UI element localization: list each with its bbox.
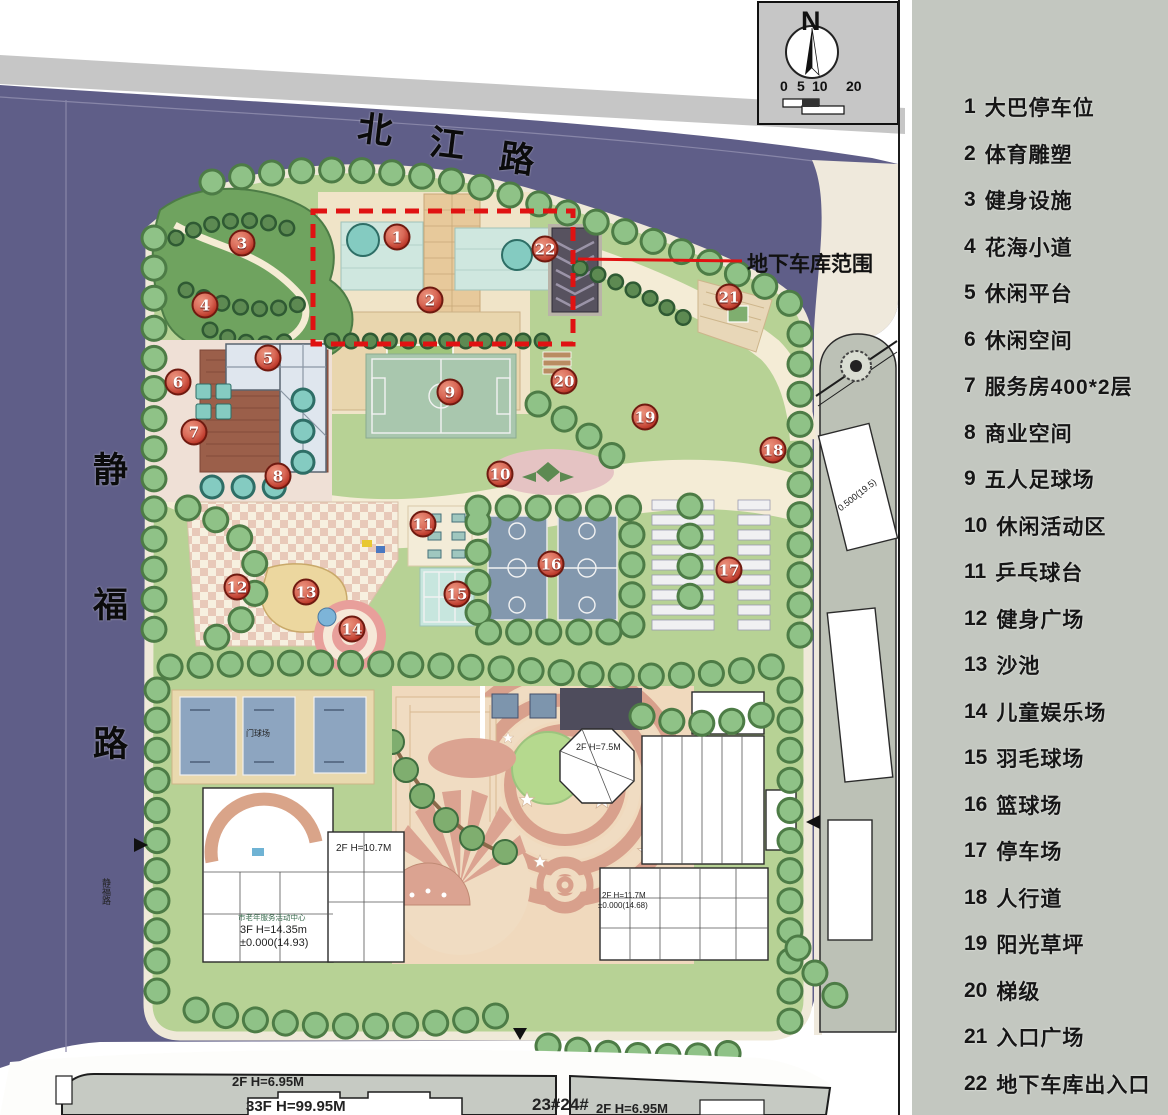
plan-marker-12: 12 bbox=[224, 574, 251, 601]
plan-marker-9: 9 bbox=[437, 379, 464, 406]
legend-item-label: 篮球场 bbox=[996, 790, 1062, 820]
legend-divider-line bbox=[898, 0, 900, 1115]
center-building-caption: 市老年服务活动中心 bbox=[238, 912, 306, 923]
legend-item-label: 五人足球场 bbox=[985, 464, 1095, 494]
plan-marker-17: 17 bbox=[716, 557, 743, 584]
legend-item-number: 5 bbox=[964, 281, 976, 305]
legend-item: 9 五人足球场 bbox=[912, 456, 1168, 503]
legend-item-number: 8 bbox=[964, 421, 976, 445]
legend-item-label: 休闲平台 bbox=[985, 278, 1073, 308]
legend-item: 17 停车场 bbox=[912, 828, 1168, 875]
site-plan-screenshot: 北 江 路 静 福 路 静福路 地下车库范围 N 051020 2F H=7.5… bbox=[0, 0, 1168, 1115]
plan-marker-6: 6 bbox=[165, 369, 192, 396]
gateball-label: 门球场 bbox=[246, 728, 270, 739]
legend-item-label: 乒乓球台 bbox=[995, 557, 1083, 587]
legend-item: 5 休闲平台 bbox=[912, 270, 1168, 317]
legend-item: 18 人行道 bbox=[912, 875, 1168, 922]
legend-item-number: 22 bbox=[964, 1072, 987, 1096]
legend-item-label: 健身设施 bbox=[985, 185, 1073, 215]
road-label-north-char3: 路 bbox=[497, 129, 539, 184]
legend-item: 19 阳光草坪 bbox=[912, 921, 1168, 968]
legend-item: 20 梯级 bbox=[912, 968, 1168, 1015]
legend-item-label: 休闲活动区 bbox=[996, 511, 1106, 541]
legend-item-number: 16 bbox=[964, 793, 987, 817]
plan-marker-8: 8 bbox=[265, 463, 292, 490]
sw-parcel-height-label: 2F H=6.95M bbox=[232, 1074, 304, 1089]
scale-tick-5: 5 bbox=[797, 78, 805, 94]
legend-item-number: 13 bbox=[964, 653, 987, 677]
legend-item: 21 入口广场 bbox=[912, 1014, 1168, 1061]
legend-item-number: 11 bbox=[964, 560, 986, 584]
legend-item-number: 20 bbox=[964, 979, 987, 1003]
legend-item: 22 地下车库出入口 bbox=[912, 1061, 1168, 1108]
legend-item-number: 14 bbox=[964, 700, 987, 724]
legend-item: 12 健身广场 bbox=[912, 596, 1168, 643]
plan-marker-4: 4 bbox=[192, 292, 219, 319]
legend-item-label: 阳光草坪 bbox=[996, 929, 1084, 959]
legend-item-label: 沙池 bbox=[996, 650, 1040, 680]
plan-marker-10: 10 bbox=[487, 461, 514, 488]
legend-item-label: 花海小道 bbox=[985, 232, 1073, 262]
legend-item-label: 健身广场 bbox=[996, 604, 1084, 634]
legend-item-number: 12 bbox=[964, 607, 987, 631]
legend-item: 2 体育雕塑 bbox=[912, 131, 1168, 178]
legend-item: 10 休闲活动区 bbox=[912, 503, 1168, 550]
legend-item-number: 9 bbox=[964, 467, 976, 491]
plan-marker-16: 16 bbox=[538, 551, 565, 578]
north-letter: N bbox=[801, 6, 821, 37]
legend-item: 3 健身设施 bbox=[912, 177, 1168, 224]
legend-item-label: 梯级 bbox=[996, 976, 1040, 1006]
legend-item-number: 17 bbox=[964, 839, 987, 863]
scale-tick-10: 10 bbox=[812, 78, 828, 94]
plan-marker-5: 5 bbox=[255, 345, 282, 372]
plan-marker-15: 15 bbox=[444, 581, 471, 608]
legend-item-label: 大巴停车位 bbox=[985, 92, 1095, 122]
legend-item-number: 21 bbox=[964, 1025, 987, 1049]
scale-tick-20: 20 bbox=[846, 78, 862, 94]
legend-item-label: 停车场 bbox=[996, 836, 1062, 866]
legend-item: 6 休闲空间 bbox=[912, 317, 1168, 364]
site-plan-graphic bbox=[0, 0, 945, 1115]
legend-item-label: 羽毛球场 bbox=[996, 743, 1084, 773]
legend-item: 8 商业空间 bbox=[912, 410, 1168, 457]
legend-item-label: 儿童娱乐场 bbox=[996, 697, 1106, 727]
s-parcel-height-label: 2F H=6.95M bbox=[596, 1101, 668, 1115]
legend-item-label: 入口广场 bbox=[996, 1022, 1084, 1052]
plan-marker-22: 22 bbox=[532, 236, 559, 263]
legend-rows: 1 大巴停车位 2 体育雕塑 3 健身设施 4 花海小道 5 休闲平台 6 休闲… bbox=[912, 84, 1168, 1107]
legend-item: 15 羽毛球场 bbox=[912, 735, 1168, 782]
legend-item-label: 地下车库出入口 bbox=[996, 1069, 1150, 1099]
garage-range-label: 地下车库范围 bbox=[747, 248, 873, 278]
legend-item-number: 7 bbox=[964, 374, 976, 398]
legend-item-number: 19 bbox=[964, 932, 987, 956]
legend-item-label: 体育雕塑 bbox=[985, 139, 1073, 169]
plan-marker-7: 7 bbox=[181, 419, 208, 446]
legend-item-number: 18 bbox=[964, 886, 987, 910]
road-label-west-char2: 福 bbox=[93, 577, 128, 628]
plan-marker-20: 20 bbox=[551, 368, 578, 395]
octagon-building-label: 2F H=7.5M bbox=[576, 742, 621, 752]
road-label-north-char1: 北 bbox=[355, 100, 396, 155]
legend-item-number: 3 bbox=[964, 188, 976, 212]
legend-item-number: 4 bbox=[964, 235, 976, 259]
road-label-west-char1: 静 bbox=[93, 442, 128, 493]
legend-panel: 1 大巴停车位 2 体育雕塑 3 健身设施 4 花海小道 5 休闲平台 6 休闲… bbox=[912, 0, 1168, 1115]
plan-marker-21: 21 bbox=[716, 284, 743, 311]
legend-item: 7 服务房400*2层 bbox=[912, 363, 1168, 410]
plan-marker-18: 18 bbox=[760, 437, 787, 464]
plan-marker-13: 13 bbox=[293, 579, 320, 606]
legend-item-number: 10 bbox=[964, 514, 987, 538]
legend-top-spacer bbox=[912, 0, 1168, 84]
legend-item-label: 人行道 bbox=[996, 883, 1062, 913]
legend-item: 11 乒乓球台 bbox=[912, 549, 1168, 596]
road-label-west-char3: 路 bbox=[93, 716, 128, 767]
legend-item-number: 15 bbox=[964, 746, 987, 770]
school-height-label: 2F H=11.7M bbox=[602, 891, 646, 900]
center-building-elev: ±0.000(14.93) bbox=[240, 937, 308, 949]
plan-marker-2: 2 bbox=[417, 287, 444, 314]
legend-item: 4 花海小道 bbox=[912, 224, 1168, 271]
legend-item-label: 服务房400*2层 bbox=[985, 371, 1133, 401]
road-label-west-small: 静福路 bbox=[100, 878, 113, 905]
road-label-north-char2: 江 bbox=[427, 114, 468, 169]
plan-marker-14: 14 bbox=[339, 616, 366, 643]
legend-item: 14 儿童娱乐场 bbox=[912, 689, 1168, 736]
school-elev-label: ±0.000(14.68) bbox=[598, 901, 648, 910]
plan-marker-19: 19 bbox=[632, 404, 659, 431]
legend-item-number: 6 bbox=[964, 328, 976, 352]
mid-building-label: 2F H=10.7M bbox=[336, 843, 391, 854]
legend-item: 13 沙池 bbox=[912, 642, 1168, 689]
plan-marker-11: 11 bbox=[410, 511, 437, 538]
legend-item-number: 2 bbox=[964, 142, 976, 166]
plan-canvas: 北 江 路 静 福 路 静福路 地下车库范围 N 051020 2F H=7.5… bbox=[0, 0, 945, 1115]
legend-item: 1 大巴停车位 bbox=[912, 84, 1168, 131]
plan-marker-1: 1 bbox=[384, 224, 411, 251]
plan-marker-3: 3 bbox=[229, 230, 256, 257]
s-parcel-number-label: 23#24# bbox=[532, 1095, 589, 1115]
center-building-height: 3F H=14.35m bbox=[240, 924, 307, 936]
legend-item-label: 休闲空间 bbox=[985, 325, 1073, 355]
scale-tick-0: 0 bbox=[780, 78, 788, 94]
legend-item: 16 篮球场 bbox=[912, 782, 1168, 829]
legend-item-label: 商业空间 bbox=[985, 418, 1073, 448]
legend-item-number: 1 bbox=[964, 95, 976, 119]
sw-parcel-tower-label: 33F H=99.95M bbox=[246, 1098, 346, 1115]
